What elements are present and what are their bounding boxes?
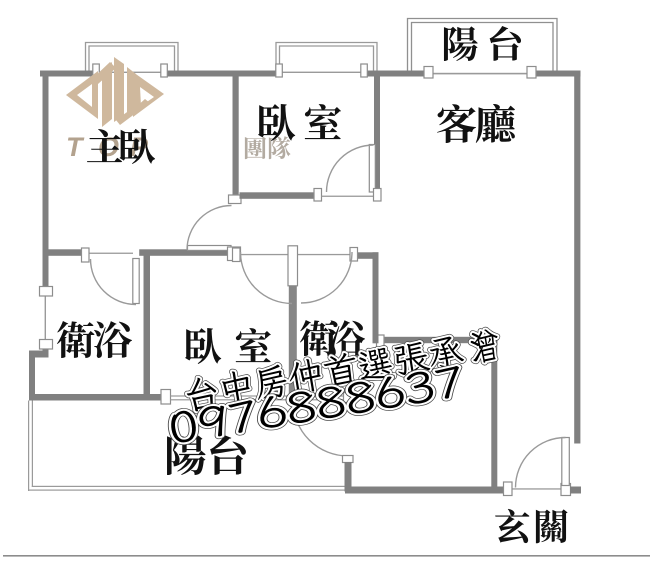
svg-text:T: T: [66, 132, 85, 162]
